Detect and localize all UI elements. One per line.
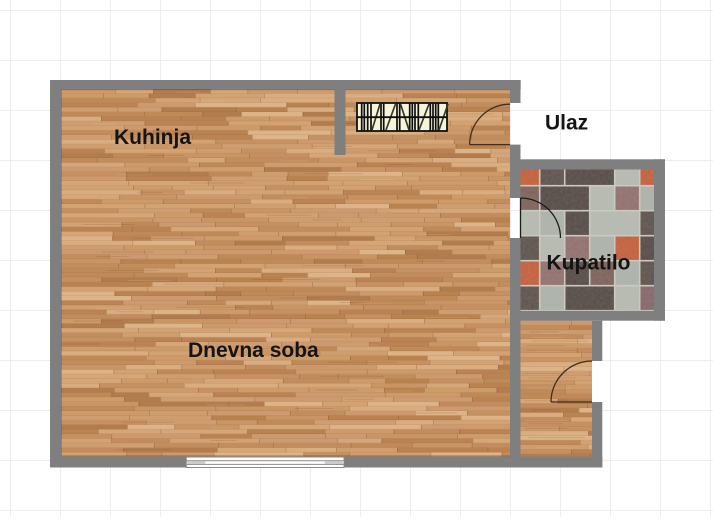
- svg-text:Kuhinja: Kuhinja: [114, 126, 191, 149]
- svg-text:Dnevna soba: Dnevna soba: [188, 339, 319, 362]
- svg-text:Kupatilo: Kupatilo: [547, 252, 631, 275]
- svg-text:Ulaz: Ulaz: [545, 112, 588, 135]
